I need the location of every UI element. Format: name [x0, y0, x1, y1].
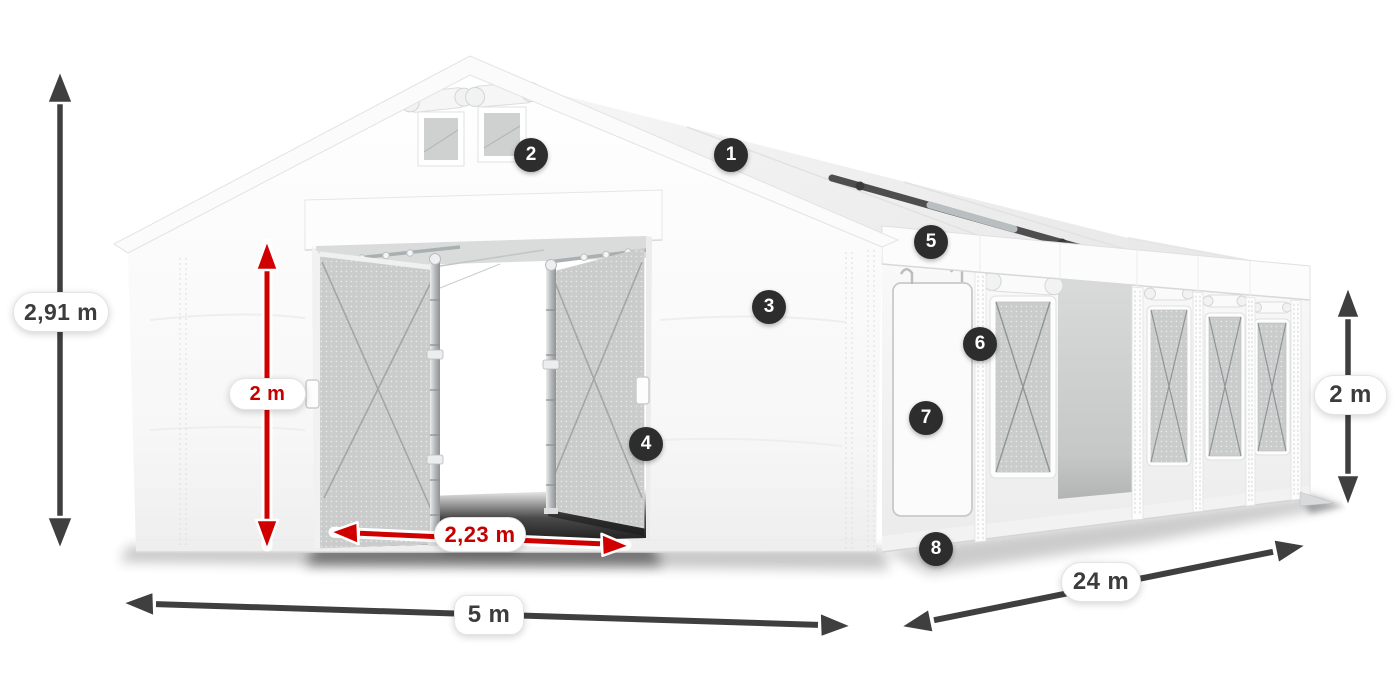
side-window-3 [1203, 295, 1247, 460]
door-strap-handle-right [636, 377, 649, 404]
door-strap-handle-left [306, 380, 319, 408]
front-door-left [320, 254, 443, 549]
side-window-2 [1145, 287, 1194, 466]
width-label: 5 m [454, 595, 524, 635]
feature-marker-7[interactable]: 7 [909, 401, 943, 435]
length-label: 24 m [1061, 562, 1141, 602]
feature-marker-4[interactable]: 4 [629, 427, 663, 461]
side-window-4 [1253, 302, 1292, 455]
feature-marker-6[interactable]: 6 [963, 327, 997, 361]
door-pole-right [546, 266, 556, 514]
feature-marker-3[interactable]: 3 [752, 290, 786, 324]
tent-illustration [0, 0, 1400, 700]
door-pole-left [430, 260, 440, 546]
side-height-label: 2 m [1314, 375, 1387, 415]
feature-marker-5[interactable]: 5 [914, 225, 948, 259]
side-door [893, 267, 972, 516]
total-height-label: 2,91 m [13, 292, 109, 332]
product-diagram: 2,91 m 2 m 2,23 m 5 m 24 m 2 m 1 2 3 4 5… [0, 0, 1400, 700]
side-wall [882, 226, 1334, 552]
feature-marker-1[interactable]: 1 [714, 138, 748, 172]
door-opening [312, 236, 652, 549]
feature-marker-2[interactable]: 2 [514, 138, 548, 172]
open-side-bay [1058, 276, 1132, 499]
side-window-1 [982, 271, 1063, 478]
door-width-label: 2,23 m [434, 517, 526, 552]
feature-marker-8[interactable]: 8 [919, 532, 953, 566]
interior-height-label: 2 m [229, 378, 306, 410]
front-door-right [543, 248, 644, 536]
